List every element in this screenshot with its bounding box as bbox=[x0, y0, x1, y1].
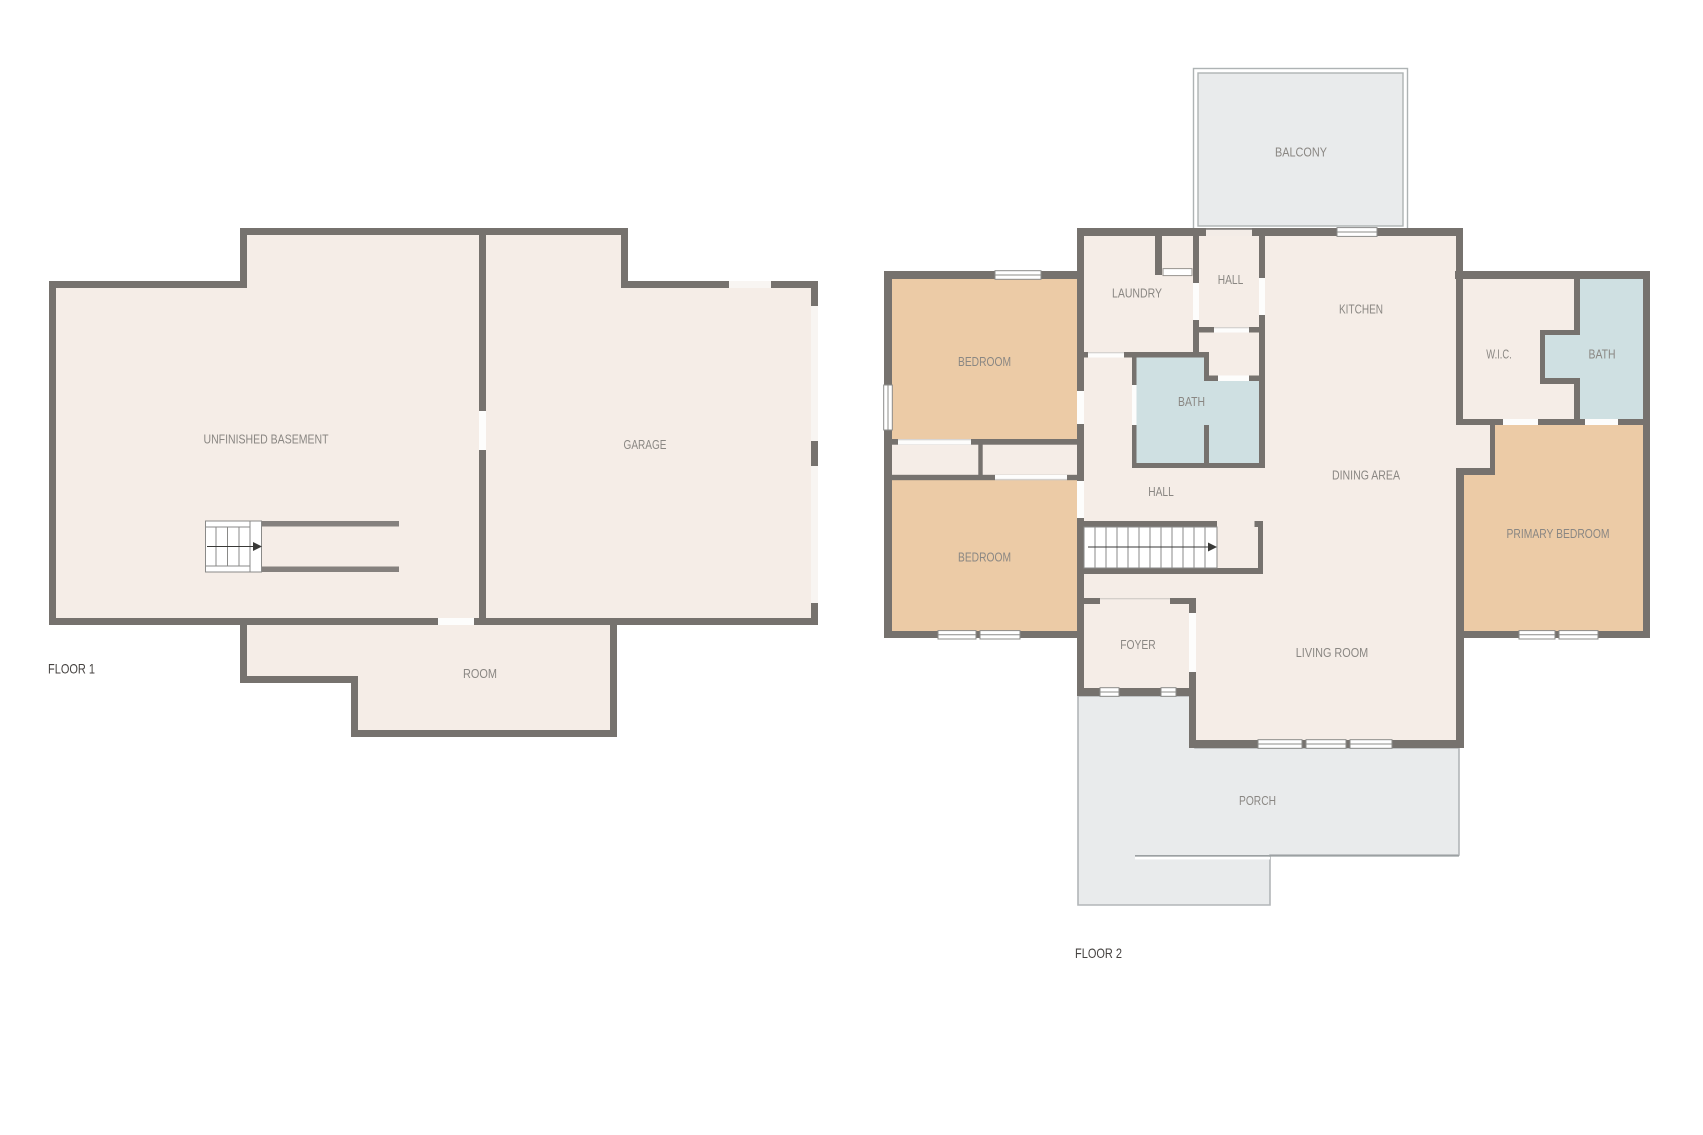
svg-text:KITCHEN: KITCHEN bbox=[1339, 302, 1383, 317]
svg-text:FOYER: FOYER bbox=[1120, 637, 1156, 652]
svg-text:BEDROOM: BEDROOM bbox=[958, 354, 1011, 369]
svg-text:UNFINISHED BASEMENT: UNFINISHED BASEMENT bbox=[204, 432, 329, 447]
svg-text:W.I.C.: W.I.C. bbox=[1486, 347, 1512, 362]
svg-text:BALCONY: BALCONY bbox=[1275, 145, 1327, 160]
svg-text:BATH: BATH bbox=[1589, 347, 1616, 362]
svg-text:HALL: HALL bbox=[1148, 484, 1174, 499]
svg-text:PORCH: PORCH bbox=[1239, 793, 1276, 808]
svg-text:FLOOR 2: FLOOR 2 bbox=[1075, 945, 1122, 961]
svg-text:LIVING ROOM: LIVING ROOM bbox=[1296, 645, 1369, 660]
svg-text:DINING AREA: DINING AREA bbox=[1332, 468, 1400, 483]
svg-text:HALL: HALL bbox=[1218, 272, 1244, 287]
svg-text:LAUNDRY: LAUNDRY bbox=[1112, 286, 1162, 301]
svg-text:BEDROOM: BEDROOM bbox=[958, 550, 1011, 565]
svg-text:BATH: BATH bbox=[1178, 394, 1205, 409]
svg-text:ROOM: ROOM bbox=[463, 666, 497, 681]
svg-text:FLOOR 1: FLOOR 1 bbox=[48, 661, 95, 677]
svg-text:PRIMARY BEDROOM: PRIMARY BEDROOM bbox=[1507, 526, 1610, 541]
svg-text:GARAGE: GARAGE bbox=[624, 437, 667, 452]
